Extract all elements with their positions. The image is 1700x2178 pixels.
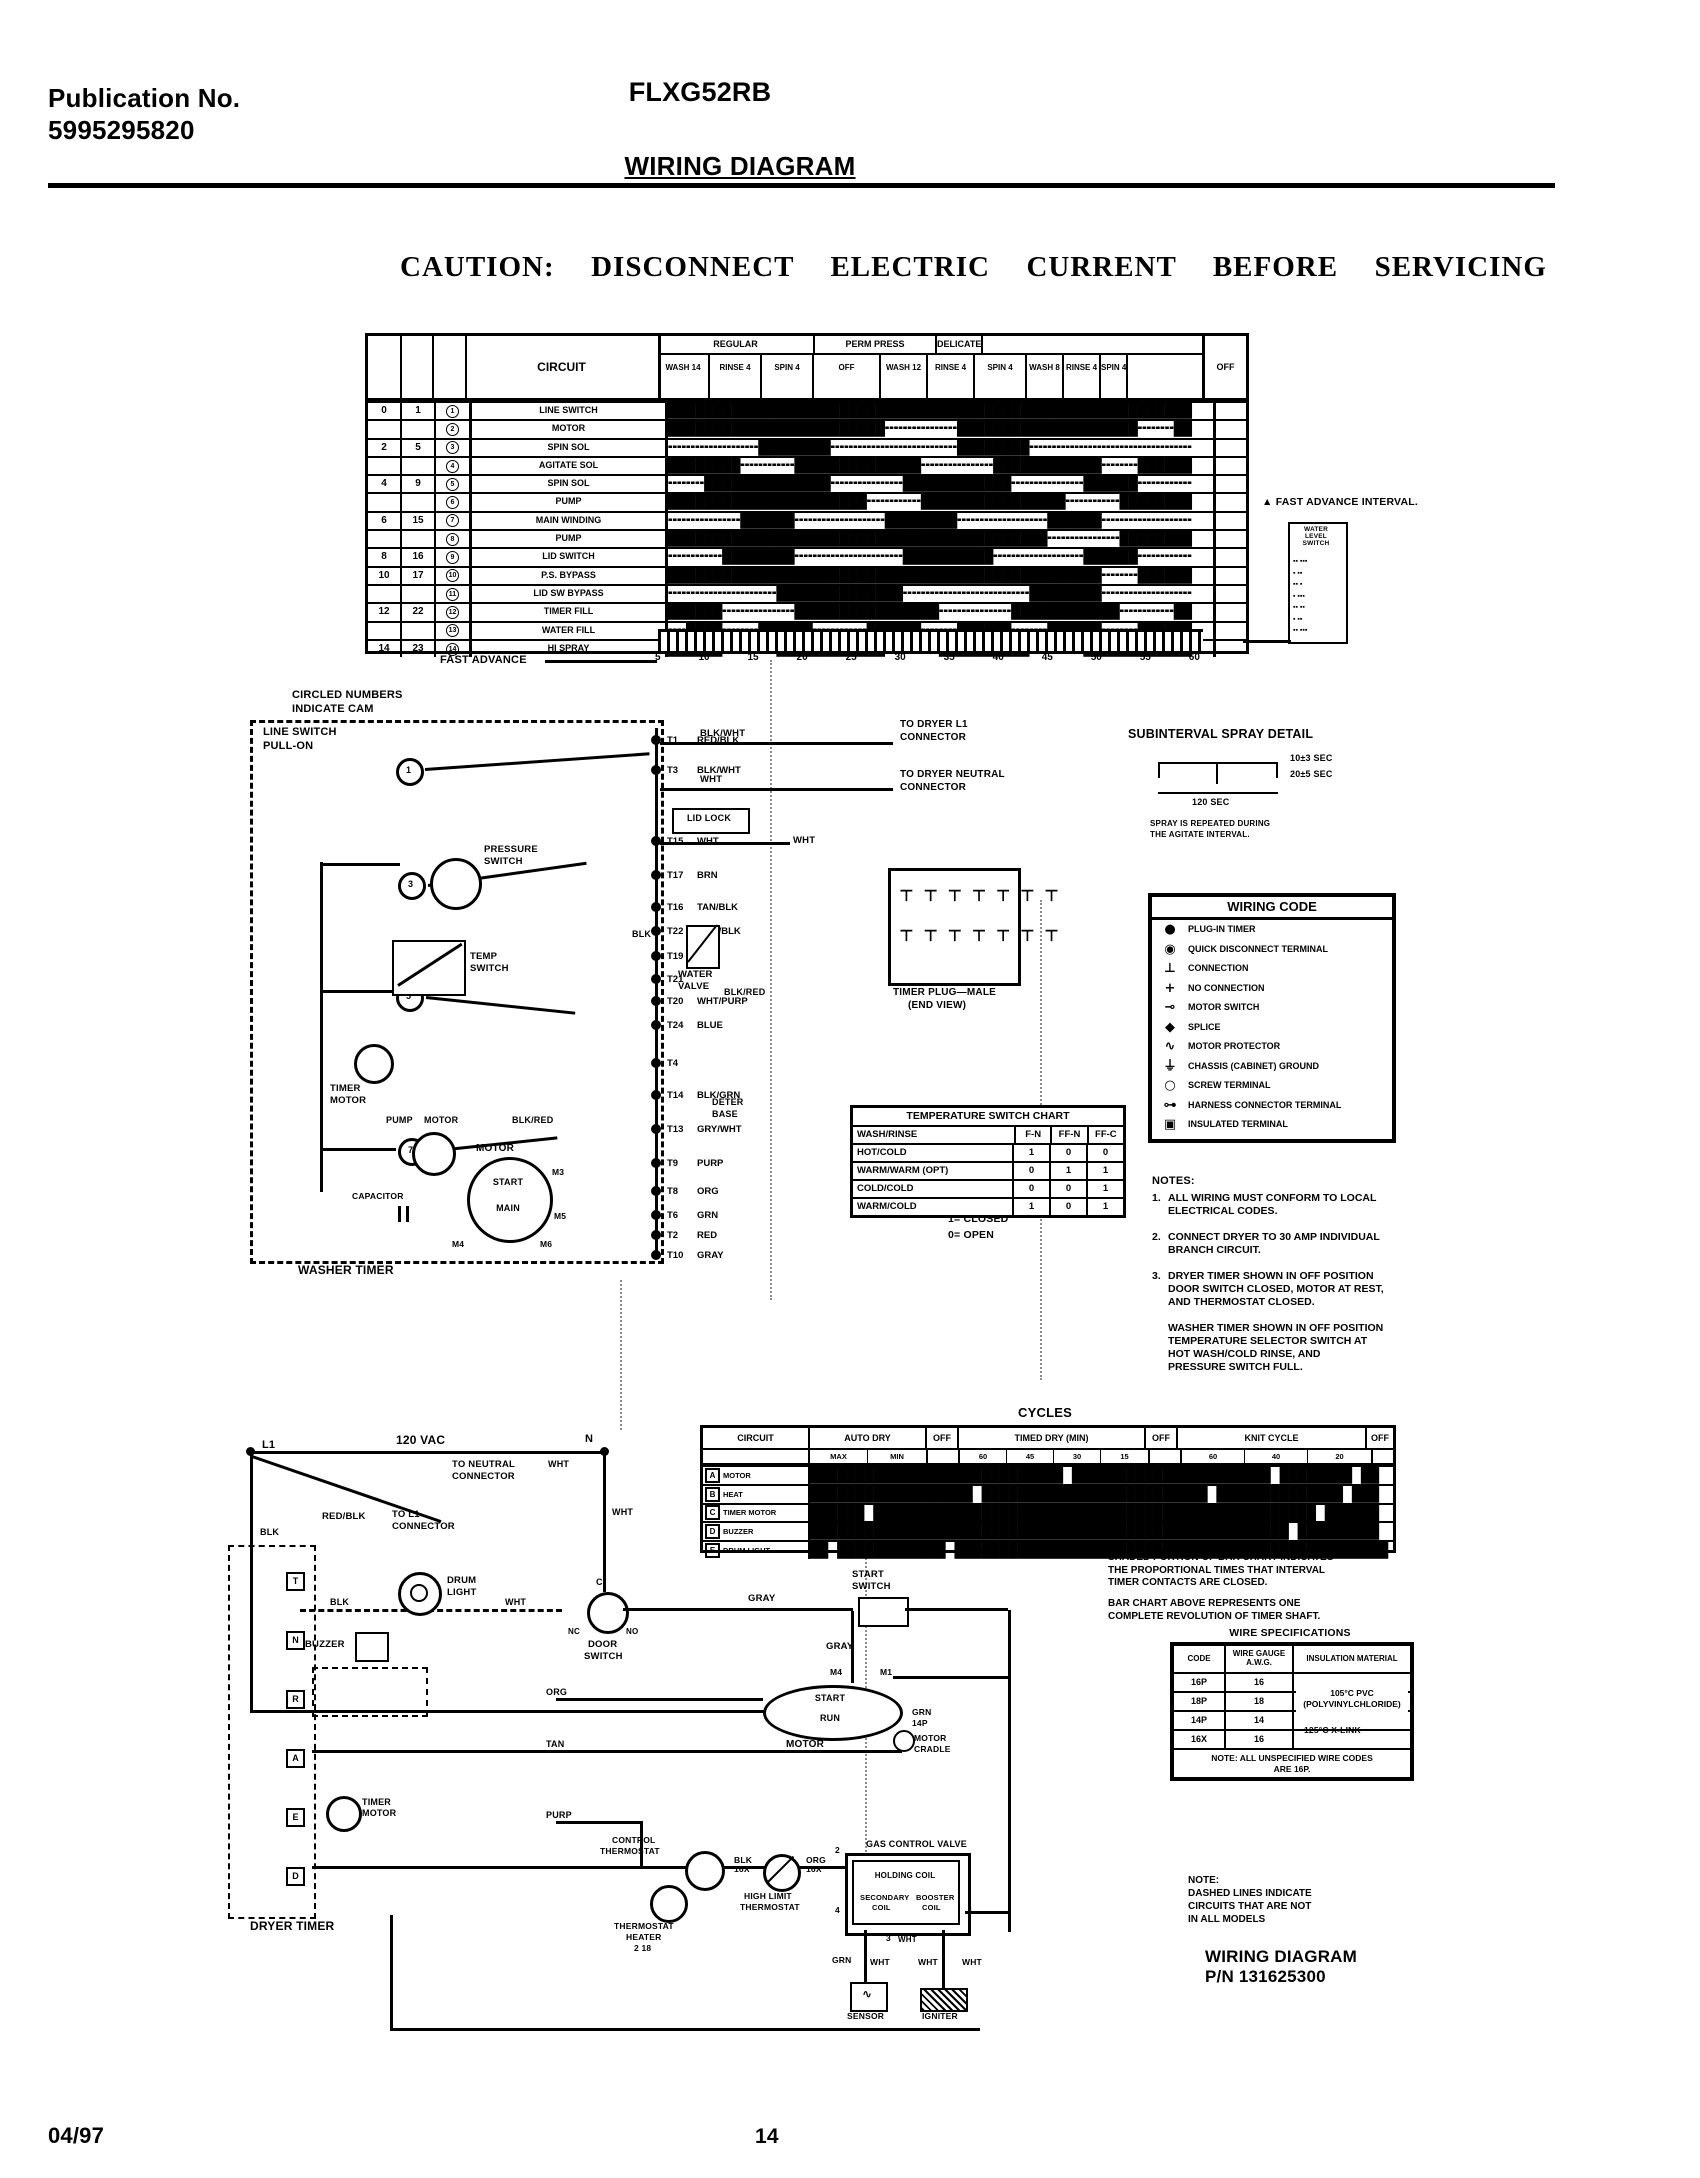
minute-cell: 6 [368, 513, 402, 529]
cam-cell: 8 [436, 531, 472, 547]
motor-terminal-m1-dryer: M1 [880, 1668, 892, 1677]
wire-specs-col3: INSULATION MATERIAL [1294, 1646, 1410, 1672]
wht-d-label: WHT [870, 1958, 890, 1967]
booster-coil-label2: COIL [922, 1904, 941, 1912]
wire-specs-note-line1: NOTE: ALL UNSPECIFIED WIRE CODES [1174, 1753, 1410, 1764]
cycles-circuit-name: MOTOR [723, 1471, 751, 1480]
temp-value-cell: 0 [1051, 1199, 1088, 1215]
terminal-dot [651, 926, 661, 936]
washer-stub-2 [320, 990, 396, 993]
cycles-autodry-header: AUTO DRY [810, 1428, 927, 1448]
washer-stub-3 [320, 1148, 396, 1151]
increment-cell [402, 421, 436, 437]
temp-chart-col: FF-C [1089, 1127, 1123, 1143]
note-line: AND THERMOSTAT CLOSED. [1168, 1296, 1384, 1309]
temp-chart-row: WARM/WARM (OPT) 011 [853, 1161, 1123, 1179]
timer-chart-row: 11 LID SW BYPASS ╍╍╍╍╍╍╍╍╍╍╍╍███████████… [368, 584, 1246, 602]
cycles-row: DBUZZER ████████████████████████████████… [703, 1521, 1393, 1540]
start-switch-label1: START [852, 1570, 884, 1580]
terminal-id: T17 [667, 870, 691, 881]
off-cell [1213, 641, 1246, 657]
wire-color-wht-a: WHT [700, 775, 722, 785]
note-line: CONNECT DRYER TO 30 AMP INDIVIDUAL [1168, 1231, 1380, 1244]
pressure-switch-symbol [430, 858, 482, 910]
door-switch-label2: SWITCH [584, 1652, 623, 1662]
cam-cell: 12 [436, 604, 472, 620]
wiring-code-entry: ● PLUG-IN TIMER [1152, 920, 1392, 940]
dryer-timer-terminal: N [286, 1631, 305, 1650]
temp-chart-row: HOT/COLD 100 [853, 1143, 1123, 1161]
cycles-row-label: BHEAT [703, 1486, 810, 1503]
note-line: DRYER TIMER SHOWN IN OFF POSITION [1168, 1270, 1384, 1283]
temp-chart-corner: WASH/RINSE [853, 1127, 1016, 1143]
org-wire [556, 1698, 763, 1701]
mini-legend-leader [1243, 640, 1291, 643]
mini-legend-row: ▪▪ ▪ [1293, 579, 1307, 591]
timer-chart-row: 6 PUMP ██████████████████████╍╍╍╍╍╍█████… [368, 492, 1246, 510]
notes-list: 1. ALL WIRING MUST CONFORM TO LOCALELECT… [1152, 1192, 1412, 1387]
gas-valve-title: GAS CONTROL VALVE [866, 1840, 967, 1850]
terminal-dot [651, 1058, 661, 1068]
mini-legend-row: ▪▪ ▪▪▪ [1293, 556, 1307, 568]
legend-symbol-icon: ⊸ [1152, 998, 1188, 1017]
wht-label-a: WHT [548, 1460, 569, 1470]
cam-number: 13 [446, 624, 459, 637]
insulation-material-merged-cell: 105°C PVC (POLYVINYLCHLORIDE) [1296, 1674, 1408, 1723]
temp-values: 100 [1014, 1145, 1123, 1161]
spray-bracket-right [1276, 762, 1278, 778]
note-item: 1. ALL WIRING MUST CONFORM TO LOCALELECT… [1152, 1192, 1412, 1218]
terminal-dot [651, 1250, 661, 1260]
terminal-row: T17BRN [651, 870, 718, 880]
high-limit-symbol [763, 1854, 801, 1892]
temp-chart-rows: HOT/COLD 100 WARM/WARM (OPT) 011 COLD/CO… [853, 1143, 1123, 1215]
dryer-timer-terminal: R [286, 1690, 305, 1709]
scan-artifact-line [770, 660, 772, 1300]
thermostat-heater-label2: HEATER [626, 1933, 662, 1942]
cam-note-line1: CIRCLED NUMBERS [292, 690, 403, 702]
increment-cell [402, 586, 436, 602]
terminal-dot [651, 870, 661, 880]
purp-wire-h [556, 1821, 642, 1824]
off-cell [1213, 494, 1246, 510]
contact-bar: ██████████████████████╍╍╍╍╍╍████████████… [668, 494, 1213, 510]
dryer-timer-motor-label1: TIMER [362, 1798, 391, 1808]
legend-symbol-label: SCREW TERMINAL [1188, 1076, 1271, 1095]
terminal-dot [651, 1020, 661, 1030]
thermostat-heater-label1: THERMOSTAT [614, 1922, 674, 1931]
legend-symbol-icon: ◆ [1152, 1018, 1188, 1037]
part-number-line1: WIRING DIAGRAM [1205, 1948, 1357, 1966]
legend-symbol-icon: ◉ [1152, 940, 1188, 959]
water-valve-x1 [687, 924, 718, 962]
timer-scale-tick: 40 [993, 652, 1004, 663]
wire-specs-row: 16X 16 [1174, 1731, 1410, 1750]
publication-number: 5995295820 [48, 116, 195, 144]
cycles-sub: 60 [1182, 1450, 1245, 1463]
legend-symbol-label: NO CONNECTION [1188, 979, 1265, 998]
off-cell [1213, 531, 1246, 547]
terminal-id: T3 [667, 765, 691, 776]
cycle-subheader-label: WASH 12 [881, 355, 928, 398]
spray-bracket-mid [1216, 762, 1218, 784]
terminal-row: T9PURP [651, 1158, 723, 1168]
washer-timer-label: WASHER TIMER [298, 1264, 394, 1277]
cycles-row-label: EDRUM LIGHT [703, 1542, 810, 1559]
circuit-label: WATER FILL [472, 623, 668, 639]
wire-color-blkred-b: BLK/RED [512, 1116, 553, 1126]
legend-symbol-icon: ∿ [1152, 1037, 1188, 1056]
sensor-label: SENSOR [847, 2012, 884, 2021]
timer-chart-rows: 0 1 1 LINE SWITCH ██████████████████████… [368, 401, 1246, 657]
water-valve-symbol [686, 925, 720, 969]
increment-cell: 16 [402, 549, 436, 565]
wire-gauge-cell: 14 [1226, 1712, 1294, 1729]
cam-number: 2 [446, 423, 459, 436]
high-limit-label2: THERMOSTAT [740, 1903, 800, 1912]
mini-legend-rows: ▪▪ ▪▪▪▪ ▪▪▪▪ ▪▪ ▪▪▪▪▪ ▪▪▪ ▪▪▪▪ ▪▪▪ [1293, 556, 1307, 637]
minute-cell: 14 [368, 641, 402, 657]
increment-cell: 1 [402, 403, 436, 419]
minute-cell: 10 [368, 568, 402, 584]
dashed-note-line: DASHED LINES INDICATE [1188, 1887, 1312, 1900]
dryer-bottom-rail-2 [390, 2028, 980, 2031]
circuit-label: LINE SWITCH [472, 403, 668, 419]
cam-circle-number: 3 [408, 880, 413, 890]
temp-chart-row: COLD/COLD 001 [853, 1179, 1123, 1197]
terminal-dot [651, 765, 661, 775]
contact-bar: ████████████████████████████████████████… [668, 568, 1213, 584]
blk-label-a: BLK [260, 1528, 279, 1538]
wire-color-blkwht: BLK/WHT [700, 729, 745, 739]
cam-cell: 10 [436, 568, 472, 584]
cam-number: 12 [446, 606, 459, 619]
buzzer-symbol [355, 1632, 389, 1662]
washer-timer-motor-label2: MOTOR [330, 1096, 366, 1106]
wire-gauge-cell: 18 [1226, 1693, 1294, 1710]
cam-number: 8 [446, 533, 459, 546]
cam-number: 1 [446, 405, 459, 418]
legend-symbol-icon: ▣ [1152, 1115, 1188, 1134]
circuit-label: MOTOR [472, 421, 668, 437]
note-line: ALL WIRING MUST CONFORM TO LOCAL [1168, 1192, 1376, 1205]
cycles-circuit-name: BUZZER [723, 1527, 753, 1536]
terminal-dot [651, 1090, 661, 1100]
high-limit-label1: HIGH LIMIT [744, 1892, 792, 1901]
cycle-group-headers: REGULARPERM PRESSDELICATE [658, 336, 1203, 355]
cycles-sub: 45 [1007, 1450, 1054, 1463]
pump-motor-label1: PUMP [386, 1116, 413, 1126]
wire-code-cell: 18P [1174, 1693, 1226, 1710]
cycle-subheader-label: WASH 8 [1027, 355, 1064, 398]
wire-color-label: GRN [697, 1210, 718, 1221]
off-cell [1213, 403, 1246, 419]
header-rule [48, 183, 1555, 188]
circuit-label: P.S. BYPASS [472, 568, 668, 584]
minute-cell [368, 458, 402, 474]
cam-cell: 5 [436, 476, 472, 492]
terminal-id: T10 [667, 1250, 691, 1261]
closed-key: 1= CLOSED [948, 1214, 1008, 1225]
ground-symbol [893, 1730, 915, 1752]
temp-switch-wiper [397, 943, 462, 987]
fast-advance-leader [545, 660, 657, 663]
terminal-letter-box: B [705, 1487, 720, 1502]
terminal-dot [651, 1186, 661, 1196]
cycles-sub-blank [928, 1450, 960, 1463]
circuit-label: SPIN SOL [472, 476, 668, 492]
timer-chart-row: 0 1 1 LINE SWITCH ██████████████████████… [368, 401, 1246, 419]
cycle-subheader-label: SPIN 4 [1101, 355, 1128, 398]
purp-label: PURP [546, 1811, 572, 1821]
gray-label-b: GRAY [826, 1642, 853, 1652]
cycle-group-label: PERM PRESS [815, 336, 937, 353]
cycle-group-label: REGULAR [658, 336, 815, 353]
cam-number: 4 [446, 460, 459, 473]
control-thermostat-symbol [685, 1851, 725, 1891]
legend-symbol-label: MOTOR SWITCH [1188, 998, 1259, 1017]
dryer-timer-terminal: D [286, 1867, 305, 1886]
timer-scale-tick: 45 [1042, 652, 1053, 663]
washer-timer-motor-symbol [354, 1044, 394, 1084]
wire-gauge-cell: 16 [1226, 1674, 1294, 1691]
dashed-lines-note: NOTE:DASHED LINES INDICATECIRCUITS THAT … [1188, 1874, 1312, 1926]
terminal-row: T24BLUE [651, 1020, 723, 1030]
tan-wire [312, 1750, 902, 1753]
valve-terminal-2: 2 [835, 1846, 840, 1855]
timer-scale-tick: 20 [797, 652, 808, 663]
timer-chart-row: 2 5 3 SPIN SOL ╍╍╍╍╍╍╍╍╍╍████████╍╍╍╍╍╍╍… [368, 438, 1246, 456]
cycles-sub-blank [1150, 1450, 1182, 1463]
legend-symbol-icon: ⊶ [1152, 1096, 1188, 1115]
contact-bar: ╍╍╍╍╍╍╍╍██████╍╍╍╍╍╍╍╍╍╍████████╍╍╍╍╍╍╍╍… [668, 513, 1213, 529]
note-number [1152, 1322, 1168, 1374]
wire-color-label: GRAY [697, 1250, 724, 1261]
motor-terminal-m4: M4 [452, 1240, 464, 1249]
valve-right-wire [965, 1911, 1010, 1914]
legend-symbol-label: MOTOR PROTECTOR [1188, 1037, 1280, 1056]
cam-circle-1: 1 [396, 758, 424, 786]
off-cell [1213, 586, 1246, 602]
cycles-row-label: CTIMER MOTOR [703, 1505, 810, 1522]
wire-specs-header: CODE WIRE GAUGE A.W.G. INSULATION MATERI… [1174, 1646, 1410, 1674]
temp-chart-col: F-N [1016, 1127, 1052, 1143]
note-lines: ALL WIRING MUST CONFORM TO LOCALELECTRIC… [1168, 1192, 1376, 1218]
legend-symbol-label: CHASSIS (CABINET) GROUND [1188, 1057, 1319, 1076]
timer-scale-tick: 35 [944, 652, 955, 663]
cycles-subheader-row: MAX MIN 60 45 30 15 60 40 20 [703, 1450, 1393, 1465]
scanned-manual-page: { "page": { "pub_label": "Publication No… [0, 0, 1700, 2178]
part-number-line2: P/N 131625300 [1205, 1968, 1326, 1986]
notes-heading: NOTES: [1152, 1176, 1195, 1188]
model-number: FLXG52RB [560, 78, 840, 107]
terminal-dot [651, 1158, 661, 1168]
cycles-sub: 20 [1308, 1450, 1373, 1463]
temp-value-cell: 0 [1014, 1181, 1051, 1197]
thermostat-heater-symbol [650, 1885, 688, 1923]
terminal-id: T13 [667, 1124, 691, 1135]
terminal-row: T2RED [651, 1230, 717, 1240]
cam-cell: 2 [436, 421, 472, 437]
page-title: WIRING DIAGRAM [560, 152, 920, 180]
contact-bar: ████████████████████████████████████████… [668, 531, 1213, 547]
wire-color-blkred-a: BLK/RED [724, 988, 765, 998]
terminal-dot [651, 1210, 661, 1220]
wht-label-b: WHT [612, 1508, 633, 1518]
circuit-label: TIMER FILL [472, 604, 668, 620]
wiring-code-entry: ◉ QUICK DISCONNECT TERMINAL [1152, 940, 1392, 960]
off-cell [1213, 513, 1246, 529]
publication-label: Publication No. [48, 84, 240, 112]
terminal-id: T16 [667, 902, 691, 913]
dryer-timer-terminal: A [286, 1749, 305, 1768]
cycles-row-label: DBUZZER [703, 1523, 810, 1540]
wiring-code-entry: ◆ SPLICE [1152, 1018, 1392, 1038]
temp-value-cell: 1 [1014, 1145, 1051, 1161]
circuit-label: PUMP [472, 494, 668, 510]
wire-to-dryer-neutral [660, 788, 893, 791]
booster-coil-label1: BOOSTER [916, 1894, 955, 1902]
minute-cell: 8 [368, 549, 402, 565]
spray-time-1: 10±3 SEC [1290, 754, 1333, 764]
cam-number: 6 [446, 496, 459, 509]
terminal-dot [651, 974, 661, 984]
thermostat-heater-label3: 2 18 [634, 1944, 651, 1953]
mini-legend-row: ▪ ▪▪ [1293, 568, 1307, 580]
drum-light-label2: LIGHT [447, 1588, 477, 1598]
gas-valve-box: HOLDING COIL SECONDARY COIL BOOSTER COIL [845, 1853, 971, 1936]
terminal-letter-box: D [705, 1524, 720, 1539]
material-xlink: 125°C X-LINK [1304, 1726, 1361, 1735]
terminal-row: T10GRAY [651, 1250, 724, 1260]
cycles-sub: 15 [1101, 1450, 1150, 1463]
wiring-code-entry: ○ SCREW TERMINAL [1152, 1076, 1392, 1096]
timer-sequence-chart: CIRCUIT REGULARPERM PRESSDELICATE WASH 1… [365, 333, 1249, 654]
cam-cell: 9 [436, 549, 472, 565]
temp-value-cell: 0 [1014, 1163, 1051, 1179]
terminal-row: T4 [651, 1058, 697, 1068]
wiring-code-title: WIRING CODE [1152, 897, 1392, 920]
cycle-subheaders: WASH 14RINSE 4SPIN 4OFFWASH 12RINSE 4SPI… [658, 355, 1203, 398]
wht-e-label: WHT [918, 1958, 938, 1967]
header-cell-cam [432, 336, 467, 398]
spray-bracket-top [1158, 762, 1278, 764]
wire-specs-note: NOTE: ALL UNSPECIFIED WIRE CODES ARE 16P… [1174, 1750, 1410, 1777]
timer-scale-tick: 55 [1140, 652, 1151, 663]
contact-bar: ╍╍╍╍██████████████╍╍╍╍╍╍╍╍████████████╍╍… [668, 476, 1213, 492]
water-level-mini-legend: WATER LEVEL SWITCH ▪▪ ▪▪▪▪ ▪▪▪▪ ▪▪ ▪▪▪▪▪… [1288, 522, 1348, 644]
mini-legend-row: ▪ ▪▪ [1293, 614, 1307, 626]
dryer-right-rail [1008, 1610, 1011, 1932]
door-to-start-wire [623, 1608, 853, 1611]
motor-terminal-m5: M5 [554, 1212, 566, 1221]
timer-scale: 51015202530354045505560 [655, 652, 1200, 663]
contact-bar: ╍╍╍╍╍╍╍╍╍╍╍╍██████████████╍╍╍╍╍╍╍╍╍╍╍╍╍╍… [668, 586, 1213, 602]
wire-to-dryer-l1 [660, 742, 893, 745]
temp-values: 011 [1014, 1163, 1123, 1179]
door-switch-nc: NC [568, 1628, 580, 1637]
timer-plug-label1: TIMER PLUG—MALE [893, 988, 996, 999]
cycle-subheader-label: WASH 14 [658, 355, 710, 398]
terminal-id: T8 [667, 1186, 691, 1197]
dryer-bottom-left-drop [390, 1915, 393, 2028]
start-switch-label2: SWITCH [852, 1582, 891, 1592]
cycles-sub: 60 [960, 1450, 1007, 1463]
cycles-circuit-header: CIRCUIT [703, 1428, 810, 1448]
to-neutral-label1: TO NEUTRAL [452, 1460, 515, 1470]
cycles-timeddry-header: TIMED DRY (MIN) [959, 1428, 1146, 1448]
water-valve-label1: WATER [678, 970, 713, 980]
note-number: 2. [1152, 1231, 1168, 1257]
sensor-glyph: ∿ [862, 1988, 872, 2001]
wire-color-label: GRY/WHT [697, 1124, 742, 1135]
cycles-row: AMOTOR ████████████████████████████ ████… [703, 1465, 1393, 1484]
temperature-switch-chart: TEMPERATURE SWITCH CHART WASH/RINSE F-N … [850, 1105, 1126, 1218]
note-line: DOOR SWITCH CLOSED, MOTOR AT REST, [1168, 1283, 1384, 1296]
cam-cell: 11 [436, 586, 472, 602]
wiring-code-legend: WIRING CODE ● PLUG-IN TIMER ◉ QUICK DISC… [1148, 893, 1396, 1143]
off-cell [1213, 549, 1246, 565]
wire-color-label: PURP [697, 1158, 723, 1169]
to-dryer-l1-line2: CONNECTOR [900, 733, 966, 744]
timer-chart-row: 8 16 9 LID SWITCH ╍╍╍╍╍╍████████╍╍╍╍╍╍╍╍… [368, 547, 1246, 565]
motor-start-winding: START [470, 1178, 546, 1188]
note-line: BRANCH CIRCUIT. [1168, 1244, 1380, 1257]
wire-specs-title: WIRE SPECIFICATIONS [1200, 1628, 1380, 1639]
capacitor-plate-1 [398, 1206, 401, 1222]
minute-cell [368, 421, 402, 437]
note-item: 3. DRYER TIMER SHOWN IN OFF POSITIONDOOR… [1152, 1270, 1412, 1309]
note-line: TEMPERATURE SELECTOR SWITCH AT [1168, 1335, 1383, 1348]
dryer-motor-symbol: START RUN [763, 1685, 903, 1741]
spray-bracket-left [1158, 762, 1160, 778]
terminal-id: T14 [667, 1090, 691, 1101]
caution-text: CAUTION: DISCONNECT ELECTRIC CURRENT BEF… [400, 252, 1300, 283]
legend-symbol-icon: ⊥ [1152, 959, 1188, 978]
holding-coil-label: HOLDING COIL [852, 1872, 958, 1881]
minute-cell: 2 [368, 440, 402, 456]
washer-motor-label: MOTOR [476, 1144, 514, 1155]
temp-switch-label2: SWITCH [470, 964, 509, 974]
to-neutral-label2: CONNECTOR [452, 1472, 515, 1482]
cam-cell: 1 [436, 403, 472, 419]
dryer-bottom-rail-1 [250, 1710, 765, 1713]
terminal-dot [651, 902, 661, 912]
increment-cell: 5 [402, 440, 436, 456]
note-line: ELECTRICAL CODES. [1168, 1205, 1376, 1218]
increment-cell: 15 [402, 513, 436, 529]
terminal-id: T2 [667, 1230, 691, 1241]
cycles-sub-blank [703, 1450, 810, 1463]
timer-scale-tick: 25 [846, 652, 857, 663]
cycles-off-header: OFF [927, 1428, 959, 1448]
terminal-id: T6 [667, 1210, 691, 1221]
legend-symbol-icon: ⏚ [1152, 1057, 1188, 1076]
wire-gauge-cell: 16 [1226, 1731, 1294, 1748]
door-switch-no: NO [626, 1628, 638, 1637]
wht-label-c: WHT [505, 1598, 526, 1608]
timer-scale-tick: 15 [748, 652, 759, 663]
increment-cell [402, 531, 436, 547]
terminal-row: T13GRY/WHT [651, 1124, 742, 1134]
redblk-label: RED/BLK [322, 1512, 366, 1522]
off-cell [1213, 421, 1246, 437]
circuit-label: AGITATE SOL [472, 458, 668, 474]
note-line: PRESSURE SWITCH FULL. [1168, 1361, 1383, 1374]
temp-setting-label: WARM/WARM (OPT) [853, 1163, 1014, 1179]
wiring-code-entry: ⏚ CHASSIS (CABINET) GROUND [1152, 1057, 1392, 1077]
dashed-note-line: CIRCUITS THAT ARE NOT [1188, 1900, 1312, 1913]
